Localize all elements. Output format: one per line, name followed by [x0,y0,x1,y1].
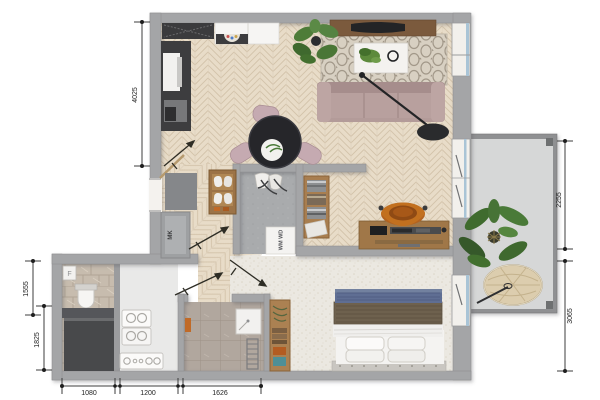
svg-text:1080: 1080 [81,390,97,397]
svg-text:F: F [67,271,71,278]
svg-text:1825: 1825 [34,332,41,348]
svg-text:1626: 1626 [212,390,228,397]
svg-text:3065: 3065 [567,308,574,324]
svg-text:WM WD: WM WD [279,230,285,250]
svg-text:MK: MK [168,230,174,240]
svg-text:4025: 4025 [132,87,139,103]
svg-text:2255: 2255 [556,192,563,208]
svg-text:1555: 1555 [23,281,30,297]
svg-text:1200: 1200 [140,390,156,397]
